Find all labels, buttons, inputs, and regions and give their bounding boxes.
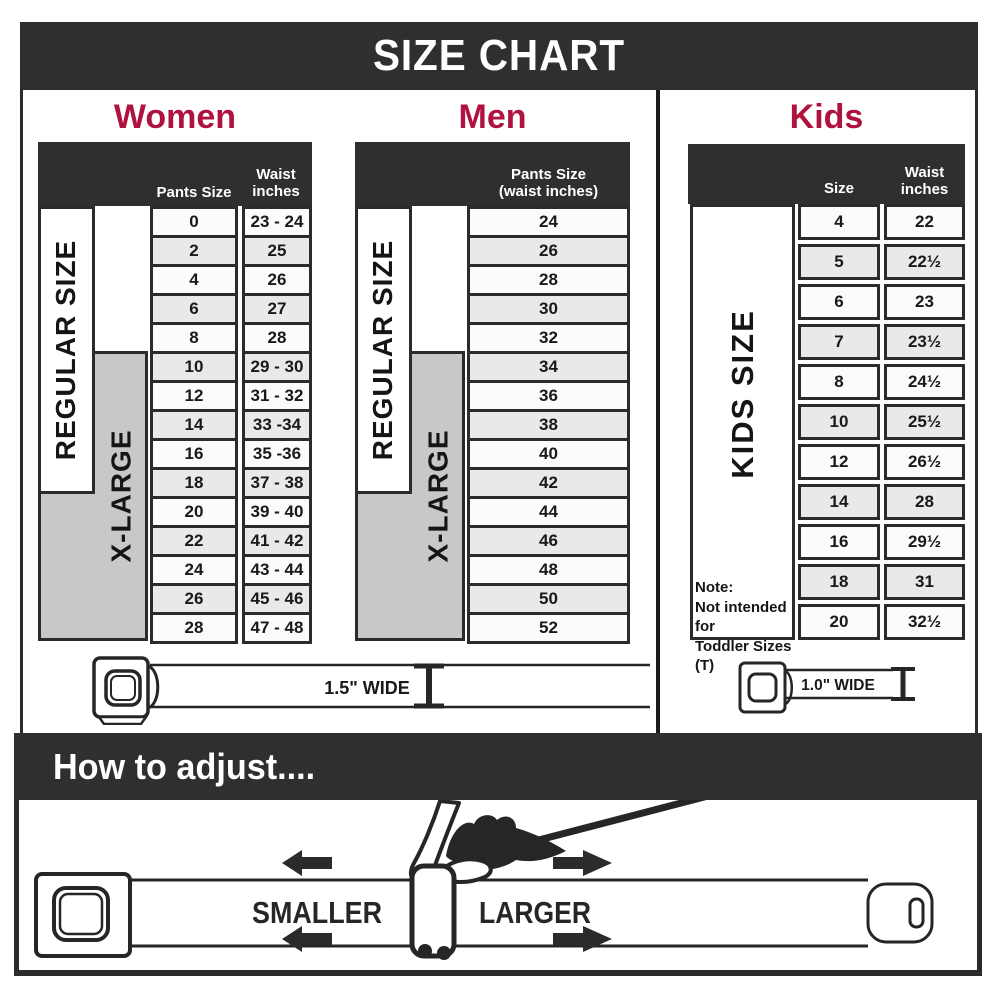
kids-size-labelbox: KIDS SIZE xyxy=(690,204,795,584)
table-cell: 10 xyxy=(150,351,238,383)
kids-waist-column: 2222½2323½24½25½26½2829½3132½ xyxy=(884,204,965,640)
table-cell: 39 - 40 xyxy=(242,496,312,528)
table-cell: 8 xyxy=(150,322,238,354)
table-cell: 25½ xyxy=(884,404,965,440)
adult-belt-width-label: 1.5" WIDE xyxy=(324,678,410,698)
women-col2-header: Waist inches xyxy=(240,166,312,201)
table-cell: 29 - 30 xyxy=(242,351,312,383)
table-cell: 28 xyxy=(150,612,238,644)
table-cell: 23 xyxy=(884,284,965,320)
table-cell: 38 xyxy=(467,409,630,441)
men-regular-zone: REGULAR SIZE xyxy=(355,206,412,494)
adjust-diagram: SMALLER LARGER xyxy=(14,800,982,976)
women-size-column: 0246810121416182022242628 xyxy=(150,206,238,644)
belt-tail-tip-icon xyxy=(868,884,932,942)
kids-note-line1: Note: xyxy=(695,578,795,598)
table-cell: 50 xyxy=(467,583,630,615)
table-cell: 27 xyxy=(242,293,312,325)
table-cell: 26 xyxy=(242,264,312,296)
title-band: SIZE CHART xyxy=(20,22,978,90)
men-xlarge-labelbox: X-LARGE xyxy=(412,351,465,641)
table-cell: 32½ xyxy=(884,604,965,640)
kids-col1-header: Size xyxy=(798,180,880,197)
table-cell: 16 xyxy=(798,524,880,560)
adult-belt-illustration: 1.5" WIDE xyxy=(88,650,663,725)
table-cell: 45 - 46 xyxy=(242,583,312,615)
table-cell: 31 xyxy=(884,564,965,600)
table-cell: 47 - 48 xyxy=(242,612,312,644)
table-cell: 4 xyxy=(798,204,880,240)
kids-belt-illustration: 1.0" WIDE xyxy=(733,655,933,720)
page-title: SIZE CHART xyxy=(373,31,625,81)
table-cell: 43 - 44 xyxy=(242,554,312,586)
table-cell: 23½ xyxy=(884,324,965,360)
smaller-label: SMALLER xyxy=(252,895,382,930)
kids-size-label: KIDS SIZE xyxy=(725,309,761,479)
adjust-band: How to adjust.... xyxy=(14,733,982,800)
women-col1-header: Pants Size xyxy=(150,184,238,201)
table-cell: 24½ xyxy=(884,364,965,400)
table-cell: 35 -36 xyxy=(242,438,312,470)
table-cell: 22½ xyxy=(884,244,965,280)
table-cell: 41 - 42 xyxy=(242,525,312,557)
adjust-heading: How to adjust.... xyxy=(14,746,315,788)
table-cell: 28 xyxy=(242,322,312,354)
larger-label: LARGER xyxy=(479,895,591,930)
table-cell: 52 xyxy=(467,612,630,644)
men-regular-label: REGULAR SIZE xyxy=(368,240,400,460)
men-col-header: Pants Size (waist inches) xyxy=(467,166,630,201)
finger-tip-icon xyxy=(418,944,432,958)
table-cell: 32 xyxy=(467,322,630,354)
kids-col2-header-line2: inches xyxy=(884,181,965,198)
women-heading: Women xyxy=(38,95,312,139)
table-cell: 26½ xyxy=(884,444,965,480)
table-cell: 31 - 32 xyxy=(242,380,312,412)
size-chart-infographic: SIZE CHART Women Men Kids Pants Size Wai… xyxy=(0,0,1000,1000)
table-cell: 28 xyxy=(467,264,630,296)
table-cell: 12 xyxy=(798,444,880,480)
table-cell: 24 xyxy=(467,206,630,238)
table-cell: 6 xyxy=(798,284,880,320)
belt-adjuster-icon xyxy=(412,866,454,956)
kids-panel-divider xyxy=(656,90,660,733)
arrow-right-icon xyxy=(553,850,612,876)
table-cell: 30 xyxy=(467,293,630,325)
table-cell: 28 xyxy=(884,484,965,520)
kids-heading: Kids xyxy=(688,95,965,139)
kids-size-column: 45678101214161820 xyxy=(798,204,880,640)
women-regular-zone: REGULAR SIZE xyxy=(38,206,95,494)
table-cell: 23 - 24 xyxy=(242,206,312,238)
table-cell: 20 xyxy=(798,604,880,640)
table-cell: 7 xyxy=(798,324,880,360)
table-cell: 24 xyxy=(150,554,238,586)
table-cell: 40 xyxy=(467,438,630,470)
table-cell: 22 xyxy=(884,204,965,240)
table-cell: 29½ xyxy=(884,524,965,560)
kids-belt-width-label: 1.0" WIDE xyxy=(801,677,875,694)
table-cell: 20 xyxy=(150,496,238,528)
adult-width-measure-icon xyxy=(414,666,444,706)
women-xlarge-labelbox: X-LARGE xyxy=(95,351,148,641)
table-cell: 14 xyxy=(150,409,238,441)
women-xlarge-label: X-LARGE xyxy=(106,430,138,563)
women-col2-header-line2: inches xyxy=(240,183,312,200)
men-col-header-line2: (waist inches) xyxy=(467,183,630,200)
table-cell: 18 xyxy=(150,467,238,499)
table-cell: 25 xyxy=(242,235,312,267)
men-xlarge-label: X-LARGE xyxy=(423,430,455,563)
women-col2-header-line1: Waist xyxy=(240,166,312,183)
table-cell: 5 xyxy=(798,244,880,280)
table-cell: 0 xyxy=(150,206,238,238)
kids-col2-header: Waist inches xyxy=(884,164,965,199)
adult-belt-buckle-icon xyxy=(94,658,158,724)
table-cell: 36 xyxy=(467,380,630,412)
table-cell: 6 xyxy=(150,293,238,325)
table-cell: 44 xyxy=(467,496,630,528)
table-cell: 10 xyxy=(798,404,880,440)
table-cell: 4 xyxy=(150,264,238,296)
table-cell: 42 xyxy=(467,467,630,499)
table-cell: 26 xyxy=(467,235,630,267)
table-cell: 18 xyxy=(798,564,880,600)
table-cell: 8 xyxy=(798,364,880,400)
men-size-column: 242628303234363840424446485052 xyxy=(467,206,630,644)
adjust-buckle-icon xyxy=(36,874,130,956)
table-cell: 46 xyxy=(467,525,630,557)
kids-col2-header-line1: Waist xyxy=(884,164,965,181)
table-cell: 33 -34 xyxy=(242,409,312,441)
women-waist-column: 23 - 242526272829 - 3031 - 3233 -3435 -3… xyxy=(242,206,312,644)
table-cell: 2 xyxy=(150,235,238,267)
kids-width-measure-icon xyxy=(891,669,915,699)
arrow-left-icon xyxy=(282,850,332,876)
table-cell: 16 xyxy=(150,438,238,470)
table-cell: 26 xyxy=(150,583,238,615)
table-cell: 34 xyxy=(467,351,630,383)
table-cell: 22 xyxy=(150,525,238,557)
women-regular-label: REGULAR SIZE xyxy=(51,240,83,460)
table-cell: 12 xyxy=(150,380,238,412)
table-cell: 37 - 38 xyxy=(242,467,312,499)
men-heading: Men xyxy=(355,95,630,139)
men-col-header-line1: Pants Size xyxy=(467,166,630,183)
table-cell: 14 xyxy=(798,484,880,520)
kids-belt-buckle-icon xyxy=(740,663,792,712)
kids-note-line2: Not intended for xyxy=(695,598,795,637)
table-cell: 48 xyxy=(467,554,630,586)
finger-tip-icon xyxy=(437,946,451,960)
